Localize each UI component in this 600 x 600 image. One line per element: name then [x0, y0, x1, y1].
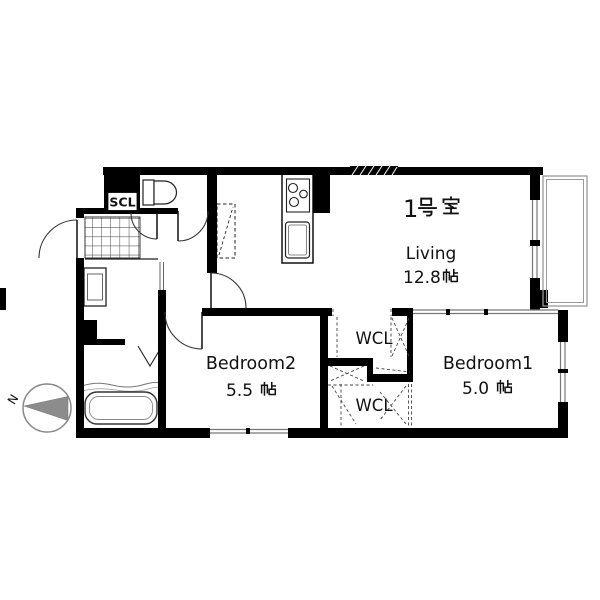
wall-band-b: [202, 308, 332, 316]
living-area-value: 12.8: [403, 268, 441, 288]
wall-bed1-right-a: [558, 310, 568, 342]
kitchen-counter: [282, 173, 313, 263]
window-bedroom2-bottom: [210, 428, 288, 438]
wall-band-c: [392, 308, 413, 316]
wall-living-right-a: [530, 167, 540, 200]
wall-hall-right: [207, 167, 217, 273]
wall-living-right-b: [530, 240, 540, 246]
wall-left: [76, 258, 84, 438]
wall-wcl-divider-a: [328, 358, 373, 366]
wall-bed2-right: [320, 308, 328, 438]
floor-plan-page: SCL 1 Living 12.8 Bedroom2 5.5 Bedroom1 …: [0, 0, 600, 600]
wcl-upper-label: WCL: [355, 329, 393, 348]
floor-plan-drawing: SCL 1 Living 12.8 Bedroom2 5.5 Bedroom1 …: [0, 0, 600, 600]
bedroom2-area-value: 5.5: [226, 381, 253, 401]
wall-left-upper: [76, 208, 84, 218]
top-wall-hatched-window: [350, 166, 398, 175]
bedroom1-area-value: 5.0: [462, 379, 489, 399]
unit-number: 1: [403, 195, 418, 223]
toilet: [143, 180, 176, 205]
scl-closet: SCL: [108, 192, 138, 211]
wall-bath-divider: [79, 339, 125, 345]
wcl-lower-label: WCL: [355, 396, 393, 415]
wall-stove-stub: [313, 172, 330, 213]
stove-burners: [287, 179, 310, 212]
bedroom2-name: Bedroom2: [206, 354, 296, 374]
wall-edge-stub: [0, 288, 6, 310]
wall-toilet-bottom: [140, 208, 178, 214]
bedroom1-name: Bedroom1: [443, 354, 533, 374]
kitchen-sink: [286, 222, 310, 258]
scl-label: SCL: [109, 195, 135, 210]
wash-basin: [84, 268, 106, 306]
wall-wcl-divider-b: [367, 358, 373, 382]
wall-bed1-right-b: [558, 402, 568, 438]
living-name: Living: [406, 244, 457, 264]
wall-wcl-right: [407, 316, 413, 382]
